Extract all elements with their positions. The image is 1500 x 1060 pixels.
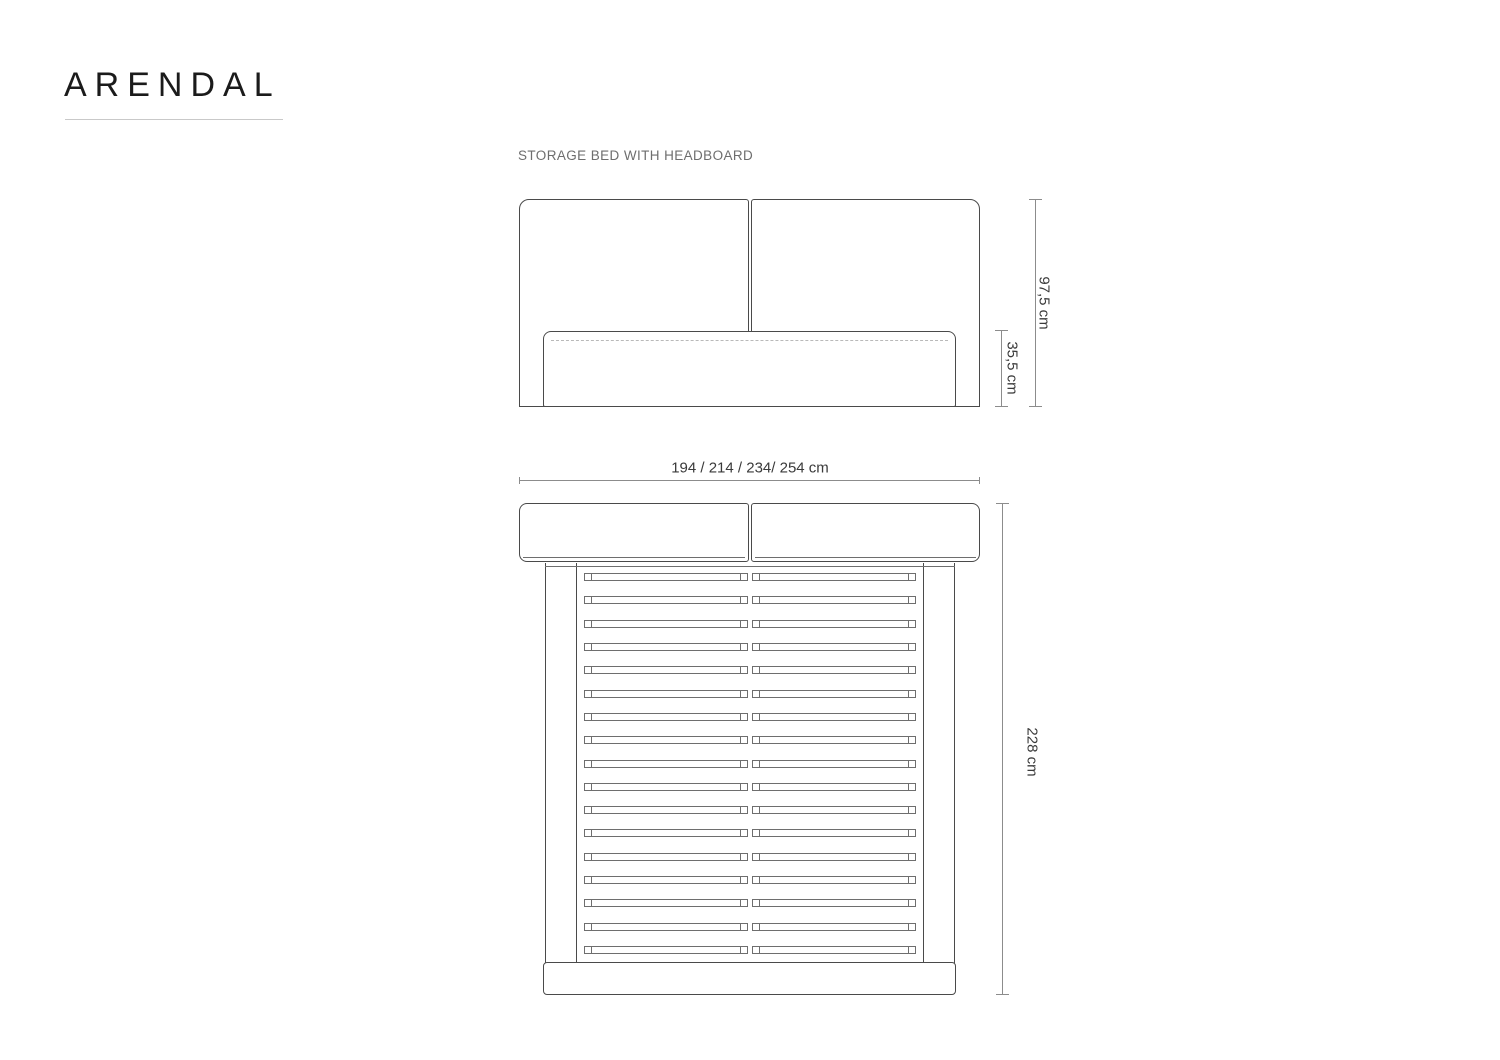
slat-holder-mark — [759, 621, 760, 627]
slat-left-half — [584, 666, 748, 674]
slat-left-half — [584, 713, 748, 721]
slat-holder-mark — [740, 667, 741, 673]
slat-right-half — [752, 899, 916, 907]
slat-holder-mark — [759, 854, 760, 860]
dimension-label-total-height: 97,5 cm — [1036, 276, 1053, 329]
slat-row — [584, 736, 916, 744]
slat-holder-mark — [591, 597, 592, 603]
slat-holder-mark — [908, 714, 909, 720]
slat-holder-mark — [908, 761, 909, 767]
dim-tick — [1029, 406, 1042, 407]
slat-holder-mark — [759, 807, 760, 813]
slat-left-half — [584, 643, 748, 651]
slat-holder-mark — [740, 807, 741, 813]
slat-left-half — [584, 620, 748, 628]
slat-holder-mark — [908, 784, 909, 790]
slat-holder-mark — [759, 737, 760, 743]
slat-row — [584, 666, 916, 674]
slat-holder-mark — [759, 761, 760, 767]
slat-right-half — [752, 620, 916, 628]
slat-holder-mark — [740, 737, 741, 743]
headboard-top-left-panel — [519, 503, 749, 562]
slat-holder-mark — [591, 877, 592, 883]
slat-holder-mark — [759, 667, 760, 673]
slat-holder-mark — [591, 947, 592, 953]
footboard-top — [543, 962, 956, 995]
slat-row — [584, 690, 916, 698]
slat-holder-mark — [908, 574, 909, 580]
slat-holder-mark — [908, 830, 909, 836]
slat-holder-mark — [908, 644, 909, 650]
slat-right-half — [752, 923, 916, 931]
slat-holder-mark — [908, 737, 909, 743]
slat-holder-mark — [591, 807, 592, 813]
slat-right-half — [752, 760, 916, 768]
slat-right-half — [752, 946, 916, 954]
dim-tick — [1029, 199, 1042, 200]
slat-left-half — [584, 829, 748, 837]
slat-holder-mark — [759, 877, 760, 883]
bed-base-front — [543, 331, 956, 407]
slat-holder-mark — [740, 830, 741, 836]
slat-right-half — [752, 713, 916, 721]
slat-holder-mark — [759, 830, 760, 836]
slat-row — [584, 923, 916, 931]
page: ARENDAL STORAGE BED WITH HEADBOARD 97,5 … — [0, 0, 1500, 1060]
slat-holder-mark — [908, 900, 909, 906]
slat-holder-mark — [759, 714, 760, 720]
slat-holder-mark — [908, 691, 909, 697]
slat-holder-mark — [740, 691, 741, 697]
slat-row — [584, 853, 916, 861]
headboard-edge-line — [523, 557, 745, 558]
slat-holder-mark — [740, 597, 741, 603]
slat-left-half — [584, 690, 748, 698]
slat-right-half — [752, 876, 916, 884]
slat-holder-mark — [740, 714, 741, 720]
slat-holder-mark — [591, 644, 592, 650]
dimension-line-base-height — [1001, 330, 1002, 407]
slat-holder-mark — [591, 621, 592, 627]
slat-row — [584, 829, 916, 837]
side-rail-right — [923, 563, 955, 963]
slat-holder-mark — [759, 924, 760, 930]
slat-holder-mark — [908, 924, 909, 930]
slat-holder-mark — [908, 947, 909, 953]
slat-row — [584, 806, 916, 814]
dimension-label-width-options: 194 / 214 / 234/ 254 cm — [671, 460, 829, 477]
slat-holder-mark — [740, 854, 741, 860]
product-subtitle: STORAGE BED WITH HEADBOARD — [518, 148, 753, 163]
slat-holder-mark — [591, 924, 592, 930]
slat-holder-mark — [591, 667, 592, 673]
slat-holder-mark — [591, 691, 592, 697]
dim-tick — [519, 477, 520, 484]
slat-row — [584, 946, 916, 954]
headboard-top-right-panel — [751, 503, 980, 562]
slat-area — [584, 573, 916, 954]
slat-left-half — [584, 899, 748, 907]
slat-right-half — [752, 643, 916, 651]
slat-left-half — [584, 596, 748, 604]
headboard-edge-line — [755, 557, 976, 558]
slat-holder-mark — [908, 877, 909, 883]
slat-right-half — [752, 806, 916, 814]
slat-right-half — [752, 666, 916, 674]
slat-holder-mark — [740, 784, 741, 790]
slat-holder-mark — [740, 947, 741, 953]
slat-holder-mark — [740, 644, 741, 650]
slat-left-half — [584, 946, 748, 954]
slat-right-half — [752, 736, 916, 744]
slat-holder-mark — [740, 621, 741, 627]
slat-holder-mark — [759, 644, 760, 650]
slat-holder-mark — [759, 597, 760, 603]
slat-holder-mark — [908, 854, 909, 860]
side-rail-left — [545, 563, 577, 963]
slat-holder-mark — [740, 924, 741, 930]
slat-holder-mark — [759, 900, 760, 906]
slat-holder-mark — [740, 900, 741, 906]
slat-row — [584, 899, 916, 907]
slat-holder-mark — [740, 761, 741, 767]
slat-holder-mark — [740, 877, 741, 883]
slat-left-half — [584, 853, 748, 861]
slat-holder-mark — [908, 807, 909, 813]
slat-holder-mark — [759, 691, 760, 697]
title-underline — [65, 119, 283, 120]
slat-row — [584, 573, 916, 581]
slat-holder-mark — [740, 574, 741, 580]
dim-tick — [995, 330, 1008, 331]
dimension-label-base-height: 35,5 cm — [1004, 341, 1021, 394]
slat-row — [584, 620, 916, 628]
frame-head-edge-line — [545, 566, 955, 567]
slat-right-half — [752, 596, 916, 604]
slat-holder-mark — [908, 597, 909, 603]
slat-left-half — [584, 783, 748, 791]
slat-left-half — [584, 760, 748, 768]
slat-right-half — [752, 573, 916, 581]
slat-right-half — [752, 829, 916, 837]
slat-holder-mark — [908, 667, 909, 673]
slat-holder-mark — [759, 947, 760, 953]
slat-holder-mark — [591, 900, 592, 906]
slat-right-half — [752, 690, 916, 698]
slat-holder-mark — [591, 784, 592, 790]
slat-row — [584, 783, 916, 791]
slat-holder-mark — [591, 714, 592, 720]
slat-holder-mark — [591, 574, 592, 580]
bed-base-seam-dashed-line — [551, 340, 948, 341]
slat-left-half — [584, 736, 748, 744]
dim-tick — [979, 477, 980, 484]
slat-row — [584, 713, 916, 721]
slat-holder-mark — [759, 784, 760, 790]
slat-holder-mark — [591, 830, 592, 836]
slat-holder-mark — [759, 574, 760, 580]
dim-tick — [996, 503, 1009, 504]
slat-row — [584, 876, 916, 884]
slat-left-half — [584, 923, 748, 931]
slat-holder-mark — [591, 854, 592, 860]
dim-tick — [996, 994, 1009, 995]
slat-left-half — [584, 573, 748, 581]
slat-left-half — [584, 806, 748, 814]
slat-holder-mark — [591, 737, 592, 743]
slat-row — [584, 596, 916, 604]
slat-right-half — [752, 853, 916, 861]
dim-tick — [995, 406, 1008, 407]
slat-right-half — [752, 783, 916, 791]
slat-left-half — [584, 876, 748, 884]
dimension-line-width — [519, 480, 980, 481]
slat-holder-mark — [908, 621, 909, 627]
slat-holder-mark — [591, 761, 592, 767]
page-title: ARENDAL — [64, 66, 281, 105]
slat-row — [584, 643, 916, 651]
dimension-line-length — [1002, 503, 1003, 995]
slat-row — [584, 760, 916, 768]
dimension-label-length: 228 cm — [1024, 727, 1041, 776]
